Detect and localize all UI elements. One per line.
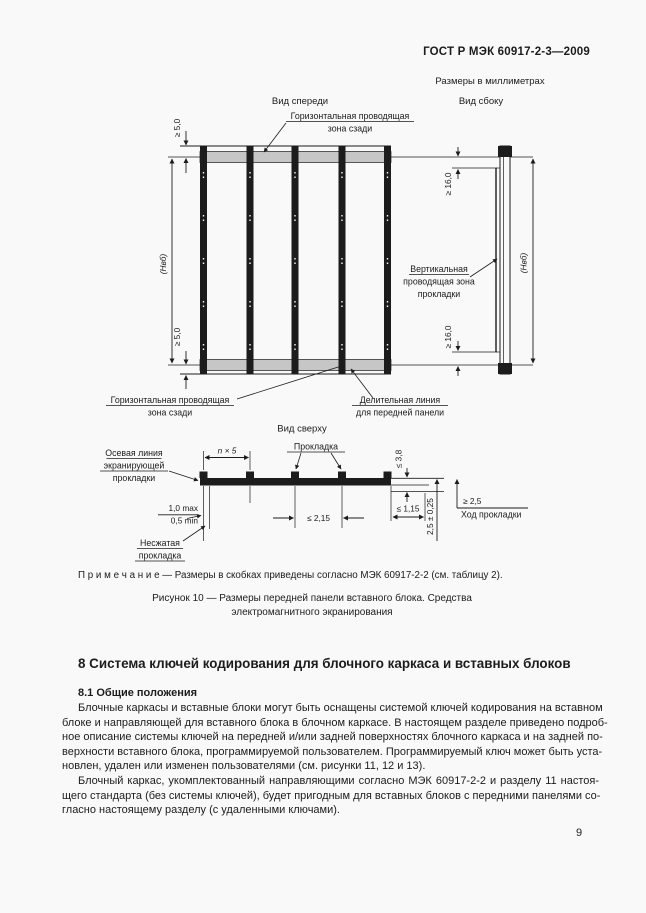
paragraph-line: гласно настоящему разделу (с удаленными …: [62, 803, 599, 818]
gasket-edge-lines: [391, 478, 444, 491]
dim-ge5-top: ≥ 5,0: [172, 118, 182, 137]
svg-text:зона сзади: зона сзади: [328, 124, 372, 134]
label-horizontal-zone-bottom: Горизонтальная проводящая зона сзади: [106, 366, 343, 418]
paragraph-line: блоке и направляющей для вставного блока…: [62, 716, 599, 731]
paragraph-line: верхности вставного блока, программируем…: [62, 745, 599, 760]
svg-text:прокладка: прокладка: [139, 551, 182, 561]
dim-compressed-thickness: 2,5 ± 0,25: [425, 480, 437, 542]
dim-le38: ≤ 3,8: [394, 449, 408, 502]
dividing-lines: [168, 157, 533, 365]
svg-text:Вертикальная: Вертикальная: [410, 264, 468, 274]
document-page: ГОСТ Р МЭК 60917-2-3—2009 Размеры в милл…: [0, 0, 646, 913]
paragraph-line: Блочный каркас, укомплектованный направл…: [62, 774, 599, 789]
svg-text:≤ 3,8: ≤ 3,8: [394, 449, 404, 468]
label-dividing-line: Делительная линия для передней панели: [351, 369, 448, 418]
paragraph-line: новлен, удален или изменен пользователям…: [62, 759, 599, 774]
svg-text:1,0 max: 1,0 max: [168, 503, 198, 513]
label-uncompressed-gasket: Несжатая прокладка: [135, 526, 205, 561]
label-gasket-axis: Осевая линия экранирующей прокладки: [100, 448, 198, 483]
svg-text:прокладки: прокладки: [418, 289, 461, 299]
svg-text:зона сзади: зона сзади: [148, 408, 192, 418]
dim-uncompressed-thickness: 1,0 max 0,5 min: [158, 503, 201, 526]
svg-text:Осевая линия: Осевая линия: [105, 448, 163, 458]
figure-10-drawing: Размеры в миллиметрах Вид спереди Вид сб…: [0, 0, 646, 570]
side-view: ≥ 16,0 ≥ 16,0 (Hвб) Вертикальная проводя…: [403, 146, 533, 376]
paragraph-line: ное описание системы ключей на передней …: [62, 730, 599, 745]
subsection-heading: 8.1 Общие положения: [78, 687, 197, 699]
svg-text:Горизонтальная проводящая: Горизонтальная проводящая: [291, 111, 410, 121]
paragraph-line: щего стандарта (без системы ключей), буд…: [62, 789, 599, 804]
dim-height-side: (Hвб): [519, 253, 529, 274]
label-gasket-travel: Ход прокладки: [461, 510, 522, 520]
side-panel: [500, 146, 510, 374]
dim-le115: ≤ 1,15: [393, 504, 424, 518]
label-vertical-zone: Вертикальная проводящая зона прокладки: [403, 259, 497, 299]
gasket-mounts: [200, 472, 392, 479]
front-view-title: Вид спереди: [272, 96, 328, 107]
figure-note: П р и м е ч а н и е — Размеры в скобках …: [78, 570, 598, 581]
dim-pitch: n × 5: [218, 446, 237, 456]
side-view-title: Вид сбоку: [459, 96, 504, 107]
front-panels: [200, 146, 391, 374]
svg-text:прокладки: прокладки: [113, 473, 156, 483]
svg-text:экранирующей: экранирующей: [104, 461, 165, 471]
svg-text:≤ 2,15: ≤ 2,15: [307, 513, 330, 523]
dim-height-front: (Hвб): [158, 254, 168, 275]
dim-ge16-bottom: ≥ 16,0: [443, 325, 453, 348]
section-heading: 8 Система ключей кодирования для блочног…: [78, 656, 598, 671]
svg-text:Горизонтальная проводящая: Горизонтальная проводящая: [111, 395, 230, 405]
panel-section: [200, 478, 391, 486]
svg-text:Несжатая: Несжатая: [140, 538, 180, 548]
top-view: n × 5 Прокладка Осевая линия экранирующе…: [100, 442, 528, 562]
dim-le215: ≤ 2,15: [273, 513, 364, 523]
svg-text:≥ 2,5: ≥ 2,5: [463, 496, 482, 506]
dim-ge5-bottom: ≥ 5,0: [172, 327, 182, 346]
figure-caption-line2: электромагнитного экранирования: [62, 607, 562, 618]
page-number: 9: [576, 827, 582, 839]
units-note: Размеры в миллиметрах: [435, 76, 544, 87]
dim-ge16-top: ≥ 16,0: [443, 172, 453, 195]
svg-text:2,5 ± 0,25: 2,5 ± 0,25: [425, 498, 435, 535]
top-view-title: Вид сверху: [277, 424, 327, 435]
paragraph-line: Блочные каркасы и вставные блоки могут б…: [62, 701, 599, 716]
svg-text:≤ 1,15: ≤ 1,15: [396, 504, 419, 514]
paragraph-2: Блочный каркас, укомплектованный направл…: [62, 774, 599, 818]
dim-gasket-travel: ≥ 2,5 Ход прокладки: [457, 480, 528, 520]
figure-caption-line1: Рисунок 10 — Размеры передней панели вст…: [62, 593, 562, 604]
svg-text:Прокладка: Прокладка: [294, 442, 338, 452]
svg-text:проводящая зона: проводящая зона: [403, 277, 475, 287]
paragraph-1: Блочные каркасы и вставные блоки могут б…: [62, 701, 599, 774]
svg-text:для передней панели: для передней панели: [356, 408, 444, 418]
label-gasket: Прокладка: [287, 442, 345, 470]
